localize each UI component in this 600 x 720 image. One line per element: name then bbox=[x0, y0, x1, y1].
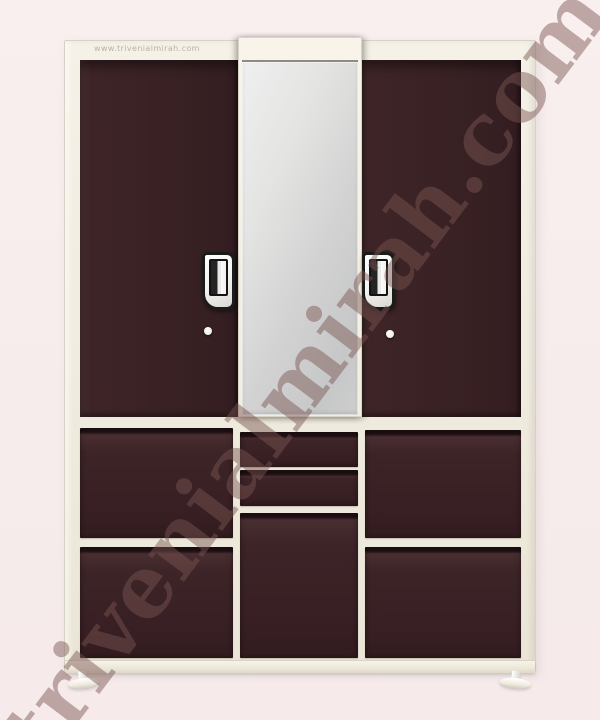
right-leveler-foot bbox=[499, 669, 533, 692]
right-door-handle bbox=[362, 252, 395, 310]
drawer-center-small-1 bbox=[240, 432, 358, 467]
right-lock-keyhole bbox=[386, 330, 394, 338]
left-handle-slot bbox=[209, 259, 228, 296]
left-leveler-foot bbox=[67, 669, 101, 692]
mirror bbox=[242, 60, 358, 415]
left-door-handle bbox=[202, 252, 235, 310]
right-foot-pad bbox=[499, 676, 531, 689]
drawer-right-lower bbox=[365, 547, 521, 658]
product-photo: www.trivenialmirah.com trive bbox=[0, 0, 600, 720]
drawer-center-small-2 bbox=[240, 470, 358, 506]
almirah: www.trivenialmirah.com bbox=[64, 40, 536, 672]
drawer-right-upper bbox=[365, 430, 521, 538]
watermark-url-text: www.trivenialmirah.com bbox=[94, 44, 200, 53]
left-foot-pad bbox=[68, 676, 100, 689]
right-handle-slot bbox=[369, 259, 388, 296]
mirror-door bbox=[238, 37, 362, 417]
base-rail bbox=[65, 660, 535, 673]
drawer-center-tall bbox=[240, 513, 358, 658]
left-lock-keyhole bbox=[204, 327, 212, 335]
right-door bbox=[360, 60, 521, 417]
drawer-left-upper bbox=[80, 428, 233, 538]
left-door bbox=[80, 60, 240, 417]
drawer-left-lower bbox=[80, 547, 233, 658]
